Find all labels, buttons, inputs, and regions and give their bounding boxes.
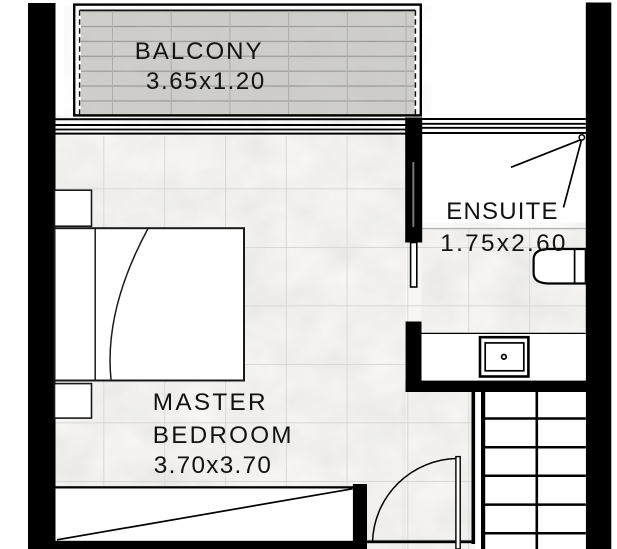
svg-text:BALCONY: BALCONY [135,38,264,65]
svg-text:1.75x2.60: 1.75x2.60 [440,230,567,257]
svg-text:3.70x3.70: 3.70x3.70 [154,452,272,479]
svg-text:MASTER: MASTER [153,389,268,416]
svg-text:BEDROOM: BEDROOM [153,422,294,449]
svg-text:3.65x1.20: 3.65x1.20 [146,68,266,95]
svg-text:ENSUITE: ENSUITE [446,198,558,225]
